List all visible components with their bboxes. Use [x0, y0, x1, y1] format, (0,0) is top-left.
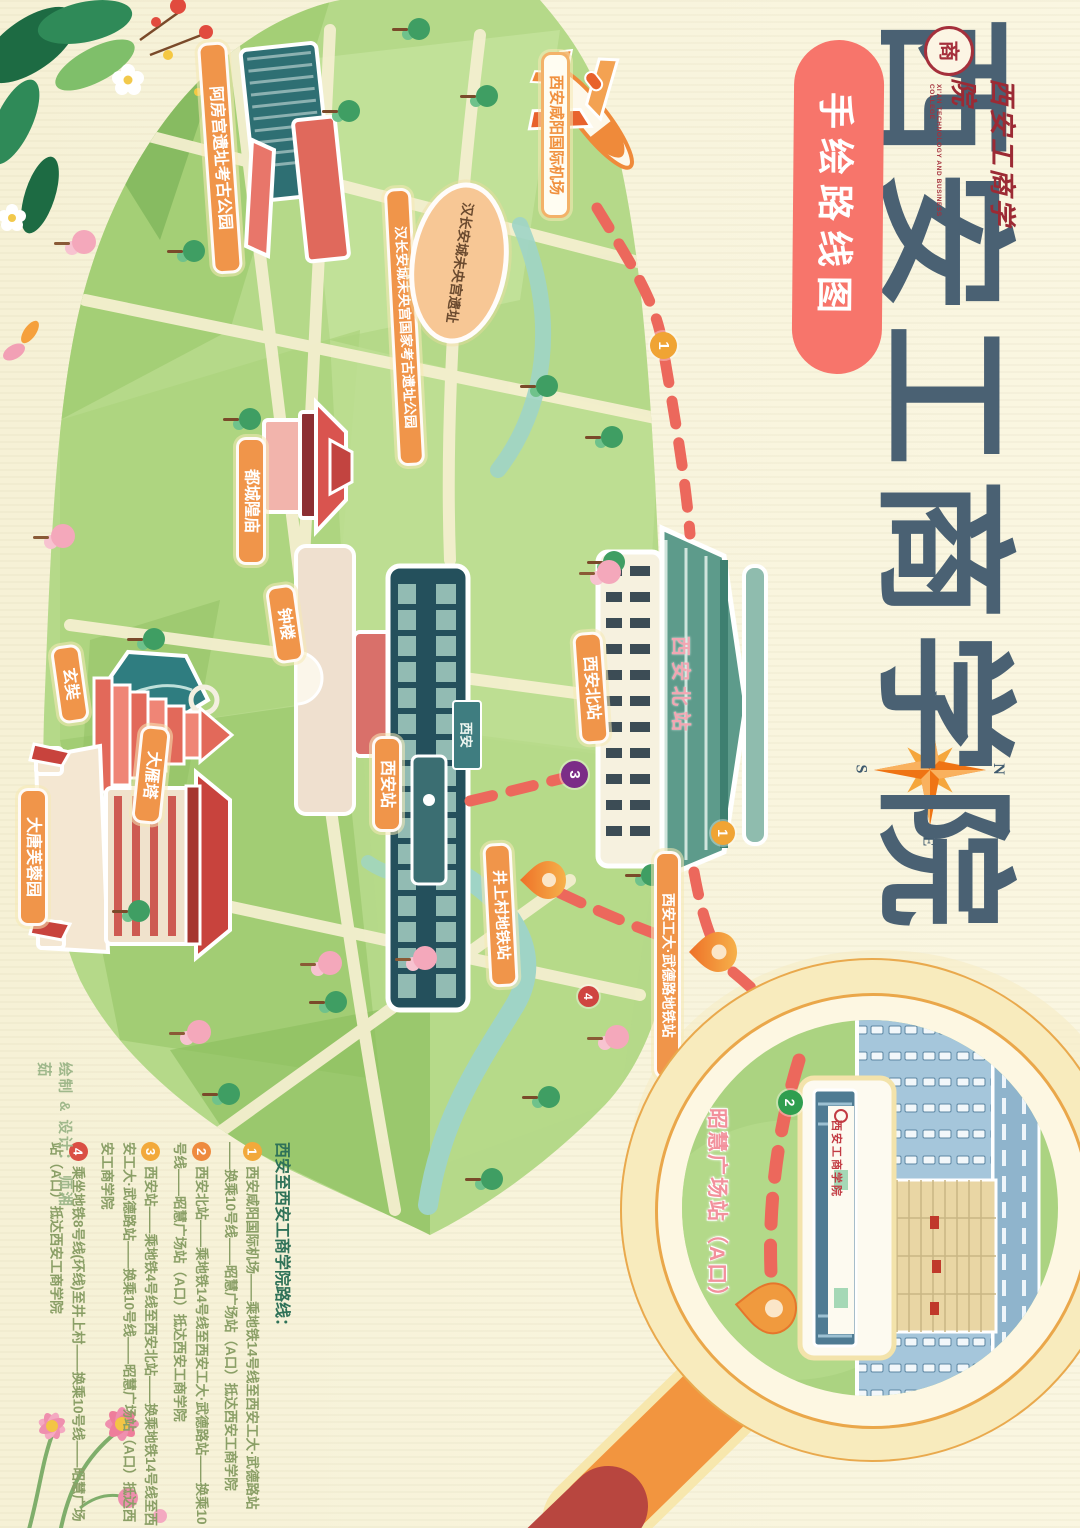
route-marker-1: 1 [711, 821, 735, 845]
route-marker-2: 2 [778, 1090, 803, 1115]
magnifier-handle [552, 1380, 735, 1528]
cherry-blossom-icon [593, 1025, 631, 1053]
route-marker-4: 4 [578, 986, 599, 1007]
label-zhaohui-station: 昭慧广场站（A口） [704, 1108, 728, 1323]
route-2-description: 2西安北站——乘地铁14号线至西安工大·武德路站——换乘10号线——昭慧广场站（… [168, 1142, 212, 1528]
route-marker-3: 3 [561, 761, 588, 788]
college-logo-english: XI'AN TECHNOLOGY AND BUSINESS COLLEGE [928, 84, 942, 224]
tree-icon [315, 991, 349, 1015]
route-3-number: 3 [141, 1142, 160, 1161]
cherry-blossom-icon [306, 951, 344, 979]
tree-icon [466, 85, 500, 109]
tree-icon [328, 100, 362, 124]
college-seal-icon: 商 [924, 26, 974, 76]
tree-icon [208, 1083, 242, 1107]
map-green-area [40, 0, 672, 1235]
tree-icon [229, 408, 263, 432]
tree-icon [133, 628, 167, 652]
route-1-number: 1 [243, 1142, 262, 1161]
label-xianyang-airport: 西安咸阳国际机场 [541, 52, 570, 218]
label-xian-station: 西安站 [372, 736, 402, 832]
cherry-blossom-icon [39, 524, 77, 552]
label-wudelu: 西安工大·武德路地铁站 [654, 851, 681, 1079]
cherry-blossom-icon [585, 560, 623, 588]
xian-station-building-sign: 西安 [452, 700, 482, 770]
route-3-description: 3西安站——乘地铁4号线至西安北站——换乘地铁14号线至西安工大·武德路站——换… [96, 1142, 162, 1528]
tree-icon [526, 375, 560, 399]
subtitle-badge: 手绘路线图 [792, 40, 885, 375]
tree-icon [591, 426, 625, 450]
college-logo-name: 西安工商学院 [946, 78, 1024, 228]
north-station-roof-text: 西安北站 [668, 636, 691, 746]
cherry-blossom-icon [401, 946, 439, 974]
label-chenghuang: 都城隍庙 [236, 437, 266, 565]
tree-icon [398, 18, 432, 42]
route-marker-1-airport: 1 [650, 332, 677, 359]
tree-icon [173, 240, 207, 264]
label-datang: 大唐芙蓉园 [18, 788, 48, 926]
metro-pin-wudelu [689, 932, 737, 972]
tree-icon [528, 1086, 562, 1110]
route-2-number: 2 [192, 1142, 211, 1161]
cherry-blossom-icon [175, 1020, 213, 1048]
tree-icon [471, 1168, 505, 1192]
subtitle-badge-text: 手绘路线图 [810, 92, 866, 322]
cherry-blossom-icon [60, 230, 98, 258]
hand-drawn-route-map-poster: 西安咸阳国际机场 阿房宫遗址考古公园 汉长安城未央宫国家考古遗址公园 汉长安城未… [0, 0, 1080, 1528]
tree-icon [118, 900, 152, 924]
designer-credit: 绘制 & 设计： 师湘茹 [34, 1062, 76, 1222]
route-legend: 西安至西安工商学院路线： 1西安咸阳国际机场——乘地铁14号线至西安工大·武德路… [42, 1142, 292, 1528]
route-legend-header: 西安至西安工商学院路线： [270, 1142, 292, 1528]
route-1-description: 1西安咸阳国际机场——乘地铁14号线至西安工大·武德路站——换乘10号线——昭慧… [219, 1142, 263, 1528]
